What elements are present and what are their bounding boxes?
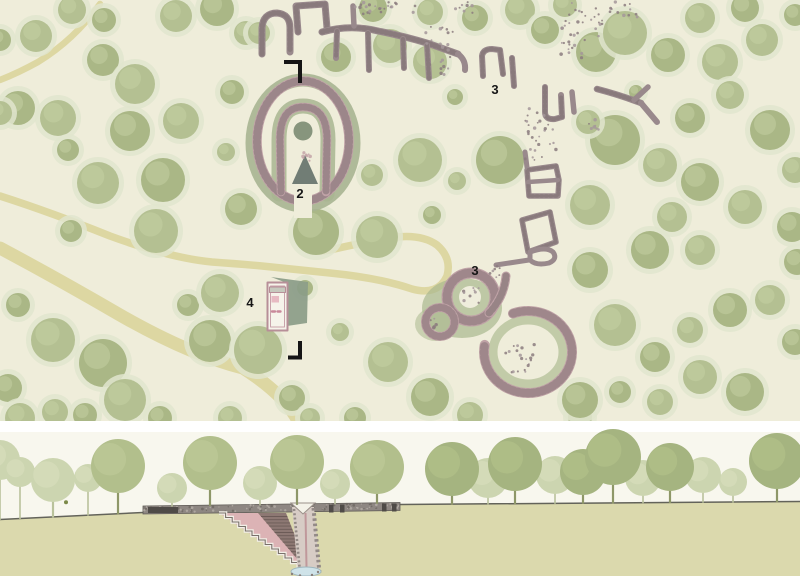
plan-tree [26, 313, 80, 367]
rubble-dot [441, 46, 444, 49]
tree-highlight [449, 90, 458, 99]
shaft-base-stone [291, 573, 293, 575]
rubble-dot [462, 299, 465, 302]
rubble-dot [568, 14, 570, 16]
cairn-stone-dot [194, 511, 196, 513]
rubble-dot [571, 2, 573, 4]
rubble-dot [308, 155, 312, 159]
tree-highlight [428, 446, 460, 478]
tree-highlight [465, 7, 479, 21]
rubble-dot [568, 22, 570, 24]
rubble-dot [527, 130, 530, 133]
cairn-stone-dot [246, 508, 248, 510]
tree-highlight [222, 82, 235, 95]
tree-highlight [8, 295, 21, 308]
tree-highlight [114, 114, 136, 136]
tree-highlight [84, 343, 110, 369]
rubble-dot [446, 48, 449, 51]
rubble-dot [432, 325, 436, 329]
plan-tree [136, 153, 190, 207]
tree-highlight [145, 161, 169, 185]
tree-highlight [685, 166, 706, 187]
plan-tree [672, 312, 708, 348]
plan-tree [635, 337, 675, 377]
ruin-shape [572, 92, 574, 112]
tree-highlight [730, 376, 751, 397]
rubble-dot [517, 370, 519, 372]
rubble-dot [360, 3, 363, 6]
plan-tree [393, 133, 447, 187]
rubble-dot [578, 10, 581, 13]
rubble-dot [564, 20, 566, 22]
rubble-dot [552, 142, 554, 144]
cairn-stone-dot [346, 503, 348, 505]
rubble-dot [362, 13, 365, 16]
tree-highlight [425, 207, 435, 217]
tree-highlight [90, 46, 108, 64]
tree-highlight [333, 324, 343, 334]
tree-highlight [758, 287, 775, 304]
tree-highlight [785, 331, 799, 345]
plan-tree [110, 59, 160, 109]
plan-tree [642, 384, 678, 420]
rubble-dot [590, 19, 592, 21]
site-plan: 2334 [0, 0, 800, 438]
cairn-stone-dot [190, 510, 192, 512]
rubble-dot [609, 10, 612, 13]
plan-tree [638, 143, 682, 187]
cairn-stone-dot [218, 506, 219, 507]
rubble-dot [473, 289, 475, 291]
rubble-dot [569, 33, 572, 36]
rubble-dot [597, 35, 599, 37]
tree-highlight [322, 471, 340, 489]
plan-tree [604, 376, 636, 408]
tree-highlight [749, 26, 767, 44]
plan-tree [646, 33, 690, 77]
plan-tree [326, 318, 354, 346]
rubble-dot [387, 1, 389, 3]
plan-tree [351, 211, 403, 263]
tree-highlight [688, 5, 705, 22]
tree-highlight [420, 1, 434, 15]
tree-highlight [186, 440, 218, 472]
rubble-dot [529, 357, 532, 360]
rubble-dot [561, 27, 564, 30]
rubble-dot [573, 34, 576, 37]
cairn-stone-dot [206, 510, 207, 511]
tree-highlight [81, 165, 104, 188]
rubble-dot [592, 125, 595, 128]
tree-highlight [360, 219, 383, 242]
cairn-stone-dot [232, 510, 234, 512]
rubble-dot [616, 11, 619, 14]
rubble-dot [544, 127, 547, 130]
rubble-dot [516, 344, 519, 347]
tree-highlight [686, 363, 705, 382]
cairn-stone-dot [201, 508, 204, 511]
tree-highlight [353, 444, 385, 476]
rubble-dot [495, 276, 497, 278]
rubble-dot [574, 9, 577, 12]
rubble-dot [535, 140, 537, 142]
rubble-dot [627, 14, 630, 17]
rubble-dot [424, 31, 427, 34]
plan-tree [567, 247, 613, 293]
rubble-dot [524, 371, 526, 373]
rubble-dot [461, 4, 463, 6]
rubble-dot [549, 143, 551, 145]
tree-highlight [630, 86, 638, 94]
rubble-dot [534, 149, 537, 152]
rubble-dot [636, 16, 639, 19]
tree-highlight [220, 408, 233, 421]
rubble-dot [427, 68, 429, 70]
plan-tree [471, 131, 529, 189]
cairn-stone-dot [180, 509, 182, 511]
plan-tree [406, 373, 454, 421]
tree-highlight [481, 140, 507, 166]
rubble-dot [354, 5, 357, 8]
rubble-dot [478, 287, 480, 289]
rubble-dot [564, 25, 566, 27]
plan-tree [680, 230, 720, 270]
cairn-stone-dot [375, 503, 378, 506]
rubble-dot [609, 7, 612, 10]
rubble-dot [489, 272, 492, 275]
tree-highlight [167, 106, 187, 126]
plan-tree [565, 180, 615, 230]
tree-highlight [159, 475, 177, 493]
rubble-dot [537, 143, 540, 146]
rubble-dot [463, 10, 466, 13]
plan-tree [55, 215, 87, 247]
tree-highlight [75, 405, 88, 418]
rubble-dot [467, 1, 469, 3]
tree-highlight [786, 6, 798, 18]
tree-highlight [752, 437, 786, 471]
tree-highlight [33, 461, 59, 487]
rubble-dot [302, 151, 305, 154]
tree-highlight [302, 410, 313, 421]
archaeological-site-plan-and-section: 2334 [0, 0, 800, 576]
rubble-dot [563, 42, 565, 44]
plan-label-2: 2 [296, 186, 303, 201]
plan-tree [626, 226, 674, 274]
rubble-dot [588, 123, 590, 125]
rubble-dot [568, 51, 571, 54]
tree-highlight [780, 214, 797, 231]
cairn-stone-dot [260, 506, 262, 508]
rubble-dot [443, 73, 446, 76]
tree-highlight [754, 113, 776, 135]
tree-highlight [35, 321, 59, 345]
rubble-dot [305, 153, 308, 156]
plan-tree [442, 84, 468, 110]
cairn-stone-dot [360, 508, 362, 510]
cairn-stone-dot [234, 510, 236, 512]
rubble-dot [440, 67, 443, 70]
cairn-stone-dot [251, 507, 252, 508]
rubble-dot [547, 124, 549, 126]
ruin-shape [272, 296, 280, 303]
rubble-dot [387, 5, 389, 7]
cairn-stone-dot [182, 509, 183, 510]
tree-highlight [660, 204, 677, 221]
tree-highlight [643, 344, 660, 361]
tree-highlight [75, 466, 92, 483]
rubble-dot [449, 56, 451, 58]
cairn-stone-dot [191, 506, 194, 509]
shaft-center-line [306, 513, 307, 567]
tree-highlight [598, 307, 621, 330]
rubble-dot [446, 28, 449, 31]
cairn-chamber-block [340, 505, 345, 513]
rubble-dot [538, 136, 540, 138]
rubble-dot [428, 63, 431, 66]
plan-label-3: 3 [491, 82, 498, 97]
plan-tree [158, 98, 204, 144]
cairn-stone-dot [369, 507, 370, 508]
tree-highlight [59, 141, 71, 153]
tree-highlight [150, 408, 163, 421]
cairn-stone-dot [356, 507, 358, 509]
tree-highlight [119, 67, 141, 89]
tree-highlight [646, 151, 665, 170]
rubble-dot [301, 155, 305, 159]
ruin-stipple [512, 58, 514, 86]
rubble-dot [529, 148, 532, 151]
plan-tree [741, 19, 783, 61]
rubble-dot [414, 5, 417, 8]
rubble-dot [533, 343, 536, 346]
section-drawing [0, 429, 800, 576]
plan-tree [589, 299, 641, 351]
cairn-stone-dot [209, 507, 211, 509]
rubble-dot [622, 14, 626, 18]
tree-highlight [45, 401, 59, 415]
rubble-dot [528, 124, 530, 126]
plan-tree [443, 167, 471, 195]
cairn-stone-dot [349, 505, 350, 506]
tree-highlight [273, 439, 305, 471]
plan-tree [356, 159, 388, 191]
rubble-dot [595, 7, 597, 9]
rubble-dot [492, 270, 495, 273]
tree-highlight [94, 10, 107, 23]
tree-highlight [607, 14, 631, 38]
plan-section-divider [0, 421, 800, 432]
rubble-dot [554, 148, 557, 151]
tree-highlight [108, 382, 131, 405]
rubble-dot [635, 13, 638, 16]
cairn-stone-dot [350, 507, 353, 510]
tree-highlight [372, 345, 394, 367]
cairn-chamber-block [392, 504, 397, 512]
cairn-stone-dot [322, 508, 323, 509]
rubble-dot [439, 72, 442, 75]
plan-tree [723, 185, 767, 229]
rubble-dot [576, 20, 579, 23]
rubble-dot [623, 4, 626, 7]
plan-tree [52, 134, 84, 166]
rubble-dot [454, 7, 457, 10]
tree-highlight [491, 441, 523, 473]
cairn-stone-dot [352, 504, 355, 507]
rubble-dot [378, 7, 381, 10]
cairn-stone-dot [144, 507, 145, 508]
rubble-dot [470, 4, 473, 7]
rubble-dot [543, 114, 546, 117]
tree-highlight [574, 188, 596, 210]
plan-tree [35, 95, 81, 141]
rubble-dot [447, 67, 449, 69]
plan-tree [215, 75, 249, 109]
plan-tree [105, 106, 155, 156]
rubble-dot [527, 114, 529, 116]
rubble-dot [524, 157, 527, 160]
rubble-dot [365, 5, 368, 8]
rubble-dot [537, 122, 539, 124]
cairn-chamber-block [329, 505, 334, 513]
plan-tree [418, 201, 446, 229]
tree-highlight [8, 405, 25, 422]
cairn-stone-dot [265, 509, 267, 511]
tree-highlight [576, 255, 596, 275]
rubble-dot [531, 136, 534, 139]
cairn-stone-dot [181, 510, 183, 512]
rubble-dot [447, 31, 450, 34]
cairn-stone-dot [325, 506, 327, 508]
tree-highlight [534, 18, 549, 33]
tree-highlight [706, 47, 726, 67]
rubble-dot [525, 120, 528, 123]
ruin-stipple [368, 33, 369, 70]
cairn-stone-dot [349, 504, 351, 506]
rubble-dot [531, 353, 534, 356]
tree-highlight [239, 330, 265, 356]
plan-tree [196, 269, 244, 317]
plan-label-3: 3 [471, 263, 478, 278]
plan-tree [363, 337, 413, 387]
tree-highlight [611, 383, 623, 395]
rubble-dot [594, 27, 597, 30]
cairn-stone-dot [186, 510, 188, 512]
rubble-dot [629, 8, 631, 10]
plan-tree [220, 188, 262, 230]
rubble-dot [472, 287, 474, 289]
tree-highlight [94, 443, 126, 475]
tree-highlight [578, 112, 591, 125]
plan-tree [87, 3, 121, 37]
rubble-dot [527, 364, 530, 367]
plan-tree [72, 157, 124, 209]
rubble-dot [580, 52, 583, 55]
rubble-dot [412, 11, 415, 14]
cairn-stone-dot [249, 509, 251, 511]
cairn-stone-dot [270, 505, 273, 508]
cairn-stone-dot [280, 509, 282, 511]
rubble-dot [441, 59, 444, 62]
drawing-canvas: 2334 [0, 0, 800, 576]
rubble-dot [513, 345, 515, 347]
rubble-dot [368, 10, 371, 13]
tree-highlight [402, 141, 426, 165]
plan-tree [129, 204, 183, 258]
rubble-dot [452, 31, 454, 33]
rubble-dot [545, 107, 547, 109]
rubble-dot [559, 52, 563, 56]
tree-highlight [648, 447, 677, 476]
rubble-dot [528, 107, 531, 110]
tree-highlight [23, 22, 41, 40]
rubble-dot [469, 295, 472, 298]
rubble-dot [581, 11, 583, 13]
cairn-stone-dot [205, 508, 207, 510]
rubble-dot [498, 274, 500, 276]
rubble-dot [541, 156, 543, 158]
cairn-stone-dot [284, 509, 286, 511]
tree-highlight [245, 469, 265, 489]
plan-tree [750, 280, 790, 320]
tree-highlight [720, 470, 737, 487]
rubble-dot [508, 350, 511, 353]
rubble-dot [430, 26, 432, 28]
cairn-chamber-block [382, 504, 387, 512]
rubble-dot [308, 160, 310, 162]
rubble-dot [629, 3, 631, 5]
cairn-stone-dot [371, 506, 373, 508]
tree-highlight [460, 404, 474, 418]
rubble-dot [383, 8, 385, 10]
rubble-dot [594, 16, 596, 18]
cairn-stone-dot [366, 508, 368, 510]
tree-highlight [731, 193, 750, 212]
rubble-dot [380, 11, 383, 14]
tree-highlight [719, 83, 734, 98]
figure-head [64, 500, 68, 504]
rubble-dot [466, 4, 469, 7]
rubble-dot [568, 48, 570, 50]
plan-tree [745, 105, 795, 155]
cairn-stone-dot [253, 505, 254, 506]
tree-highlight [688, 237, 705, 254]
plan-tree [721, 368, 769, 416]
tree-highlight [654, 41, 673, 60]
cairn-chamber-block [148, 507, 178, 513]
rubble-dot [439, 27, 443, 31]
plan-tree [711, 76, 749, 114]
ruin-stipple [427, 45, 429, 78]
tree-highlight [346, 409, 358, 421]
ruin-shape [270, 287, 286, 293]
rubble-dot [431, 39, 433, 41]
ruin-stipple [403, 39, 404, 68]
rubble-dot [493, 268, 496, 271]
rubble-dot [538, 119, 541, 122]
rubble-dot [534, 159, 536, 161]
rubble-dot [471, 12, 473, 14]
rubble-dot [446, 43, 449, 46]
tree-highlight [163, 2, 181, 20]
cairn-stone-dot [268, 506, 270, 508]
tree-highlight [282, 387, 296, 401]
tree-highlight [680, 319, 694, 333]
plan-tree [676, 158, 724, 206]
tree-highlight [228, 195, 246, 213]
rubble-dot [463, 291, 466, 294]
rubble-dot [362, 1, 365, 4]
